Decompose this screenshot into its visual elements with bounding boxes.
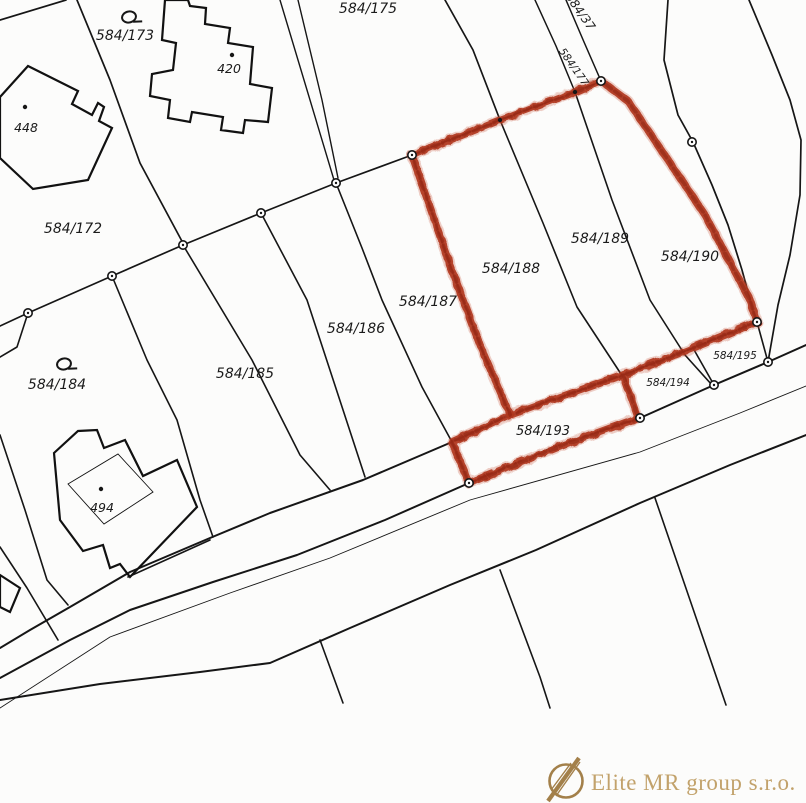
parcel-label: 584/185 [216, 366, 274, 382]
survey-point-center [260, 212, 262, 214]
building-outline [0, 575, 20, 612]
boundary-line [500, 570, 550, 708]
boundary-line [500, 120, 623, 377]
parcel-label: 420 [217, 61, 241, 76]
survey-point-center [713, 384, 715, 386]
survey-point-center [111, 275, 113, 277]
parcel-label: 584/190 [661, 249, 719, 265]
landuse-symbol [56, 356, 77, 372]
boundary-line [535, 0, 575, 92]
boundary-line [112, 276, 213, 537]
parcel-label: 494 [90, 500, 114, 515]
boundary-line [0, 345, 806, 678]
company-name: Elite MR group s.r.o. [591, 770, 796, 795]
boundary-line [298, 0, 338, 178]
parcel-label: 584/194 [646, 377, 690, 389]
parcel-label: 584/187 [399, 294, 457, 310]
parcel-label: 584/193 [516, 424, 570, 439]
boundary-line [261, 213, 365, 477]
highlighted-parcel-outline [412, 81, 757, 483]
parcel-label: 584/184 [28, 377, 86, 393]
building-footprints [0, 0, 272, 612]
survey-point-center [639, 417, 641, 419]
company-logo-icon [548, 758, 583, 801]
parcel-label: 584/175 [339, 1, 397, 17]
boundary-line [128, 540, 210, 577]
boundary-line [0, 435, 68, 605]
boundary-line [0, 386, 806, 708]
landuse-symbol [121, 9, 142, 25]
survey-point-center [767, 361, 769, 363]
boundary-vertex-dot [23, 105, 27, 109]
parcel-label: 584/172 [44, 221, 102, 237]
building-outline [150, 0, 272, 133]
cadastral-map-canvas: 584/172584/173584/175584/184584/185584/1… [0, 0, 806, 803]
boundary-line [664, 0, 757, 322]
survey-point-center [468, 482, 470, 484]
survey-point-center [756, 321, 758, 323]
survey-point-markers [23, 53, 772, 491]
parcel-label: 584/195 [713, 350, 757, 362]
boundary-line [0, 0, 66, 20]
boundary-line [445, 0, 500, 120]
parcel-label: 584/186 [327, 321, 385, 337]
boundary-line [320, 640, 343, 703]
boundary-line [280, 0, 334, 180]
parcel-label: 584/189 [571, 231, 629, 247]
survey-point-center [691, 141, 693, 143]
survey-point-center [411, 154, 413, 156]
parcel-label: 584/177 [556, 46, 591, 89]
parcel-label: 448 [14, 120, 38, 135]
survey-point-center [182, 244, 184, 246]
cadastral-map-view: 584/172584/173584/175584/184584/185584/1… [0, 0, 806, 803]
boundary-vertex-dot [230, 53, 234, 57]
parcel-number-labels: 584/172584/173584/175584/184584/185584/1… [14, 0, 757, 515]
boundary-line [757, 322, 768, 362]
boundary-vertex-dot [573, 90, 577, 94]
parcel-label: 584/37 [562, 0, 598, 33]
parcel-label: 584/188 [482, 261, 540, 277]
boundary-line [655, 498, 726, 705]
boundary-vertex-dot [99, 487, 103, 491]
survey-point-center [27, 312, 29, 314]
boundary-line [0, 435, 806, 700]
boundary-line [0, 547, 58, 640]
highlight-stroke [412, 81, 757, 483]
parcel-label: 584/173 [96, 28, 154, 44]
highlight-stroke [412, 81, 757, 483]
highlight-stroke [412, 81, 757, 483]
survey-point-center [600, 80, 602, 82]
company-watermark: Elite MR group s.r.o. [548, 758, 796, 801]
boundary-vertex-dot [498, 118, 502, 122]
survey-point-center [335, 182, 337, 184]
